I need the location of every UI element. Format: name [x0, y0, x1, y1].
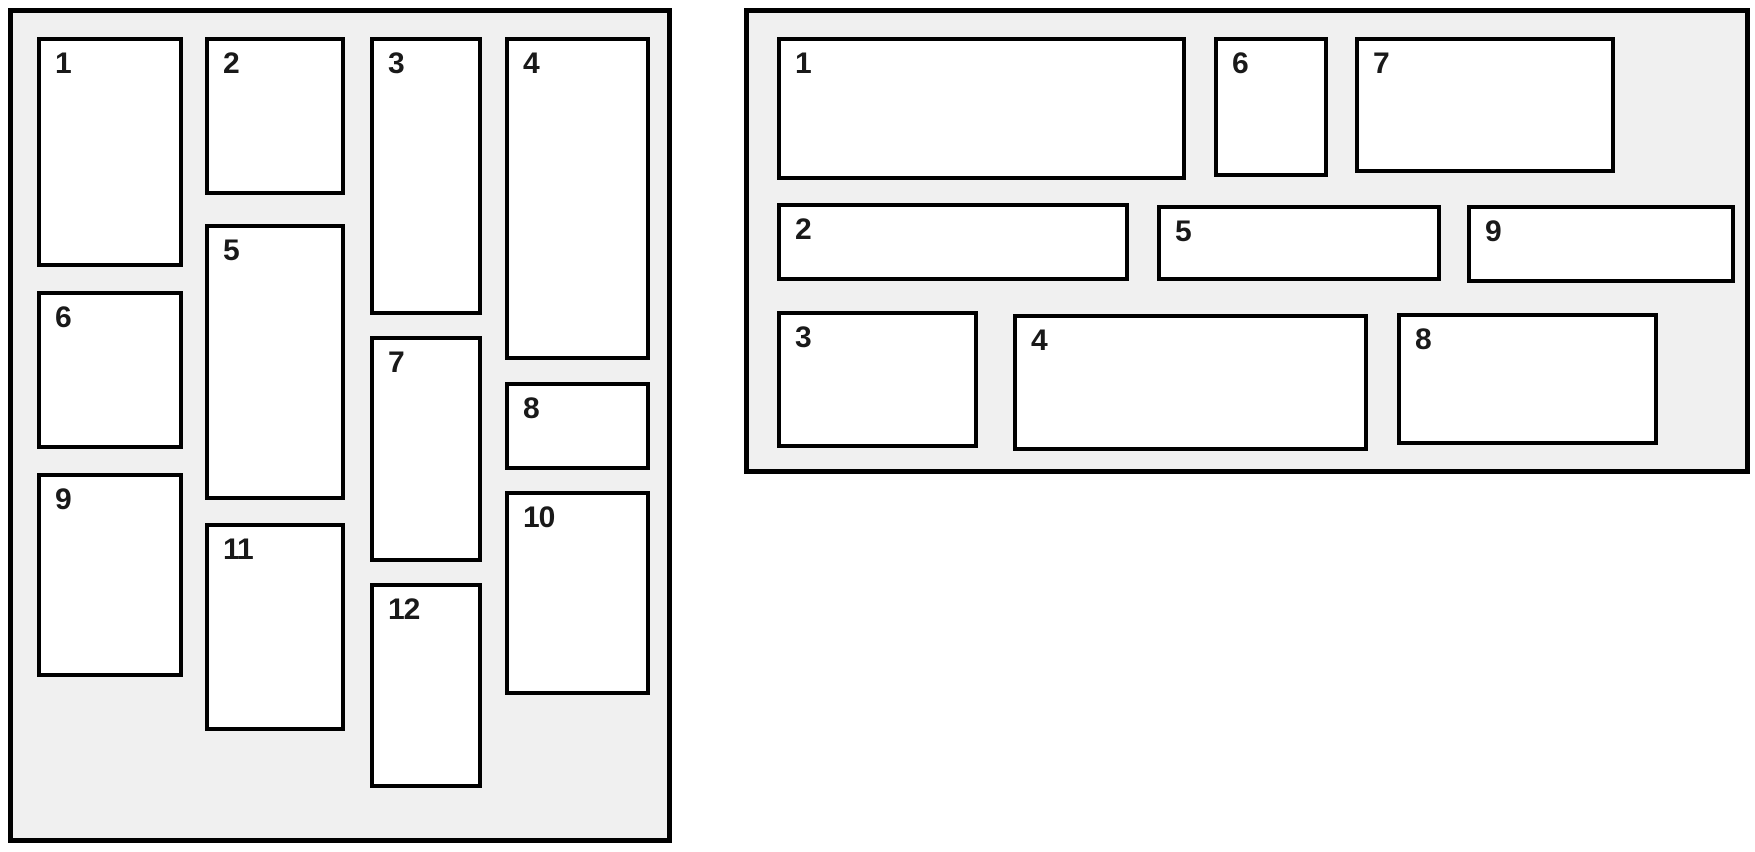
box-number-label: 10 — [509, 495, 646, 534]
masonry-layout-diagram: 123456789101112 123456789 — [0, 0, 1755, 852]
box-number-label: 4 — [1017, 318, 1364, 357]
masonry-box-4: 4 — [1013, 314, 1368, 451]
masonry-box-8: 8 — [505, 382, 650, 470]
masonry-box-2: 2 — [777, 203, 1129, 281]
box-number-label: 12 — [374, 587, 478, 626]
box-number-label: 1 — [781, 41, 1182, 80]
masonry-box-3: 3 — [370, 37, 482, 315]
box-number-label: 2 — [781, 207, 1125, 246]
masonry-box-5: 5 — [1157, 205, 1441, 281]
box-number-label: 9 — [41, 477, 179, 516]
masonry-box-6: 6 — [1214, 37, 1328, 177]
masonry-box-6: 6 — [37, 291, 183, 449]
masonry-box-7: 7 — [370, 336, 482, 562]
box-number-label: 8 — [509, 386, 646, 425]
box-number-label: 3 — [374, 41, 478, 80]
masonry-box-10: 10 — [505, 491, 650, 695]
box-number-label: 7 — [1359, 41, 1611, 80]
horizontal-masonry-panel: 123456789 — [744, 8, 1750, 474]
box-number-label: 3 — [781, 315, 974, 354]
box-number-label: 6 — [41, 295, 179, 334]
masonry-box-3: 3 — [777, 311, 978, 448]
box-number-label: 6 — [1218, 41, 1324, 80]
box-number-label: 9 — [1471, 209, 1731, 248]
box-number-label: 11 — [209, 527, 341, 566]
vertical-masonry-panel: 123456789101112 — [8, 8, 672, 843]
masonry-box-4: 4 — [505, 37, 650, 360]
box-number-label: 2 — [209, 41, 341, 80]
box-number-label: 7 — [374, 340, 478, 379]
masonry-box-1: 1 — [37, 37, 183, 267]
box-number-label: 5 — [1161, 209, 1437, 248]
box-number-label: 1 — [41, 41, 179, 80]
masonry-box-11: 11 — [205, 523, 345, 731]
masonry-box-8: 8 — [1397, 313, 1658, 445]
masonry-box-9: 9 — [37, 473, 183, 677]
masonry-box-12: 12 — [370, 583, 482, 788]
masonry-box-5: 5 — [205, 224, 345, 500]
masonry-box-7: 7 — [1355, 37, 1615, 173]
masonry-box-2: 2 — [205, 37, 345, 195]
box-number-label: 4 — [509, 41, 646, 80]
masonry-box-9: 9 — [1467, 205, 1735, 283]
box-number-label: 8 — [1401, 317, 1654, 356]
box-number-label: 5 — [209, 228, 341, 267]
masonry-box-1: 1 — [777, 37, 1186, 180]
